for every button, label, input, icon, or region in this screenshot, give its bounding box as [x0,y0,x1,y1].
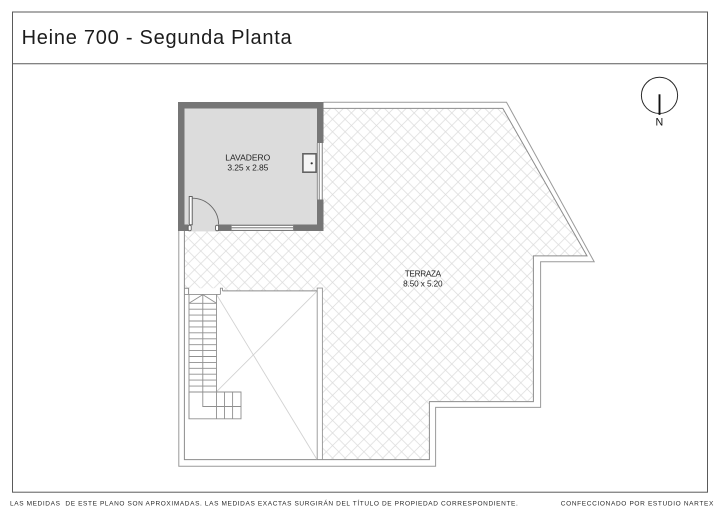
svg-text:TERRAZA: TERRAZA [405,269,442,278]
svg-text:LAVADERO: LAVADERO [225,153,270,163]
svg-text:CONFECCIONADO POR ESTUDIO NART: CONFECCIONADO POR ESTUDIO NARTEX [561,501,714,508]
svg-text:N: N [656,117,664,129]
svg-text:8.50 x 5.20: 8.50 x 5.20 [403,279,443,288]
svg-text:3.25 x 2.85: 3.25 x 2.85 [227,163,268,173]
svg-text:Heine 700 - Segunda Planta: Heine 700 - Segunda Planta [22,27,293,49]
svg-text:LAS MEDIDAS DE ESTE PLANO SON: LAS MEDIDAS DE ESTE PLANO SON APROXIMADA… [10,499,518,508]
